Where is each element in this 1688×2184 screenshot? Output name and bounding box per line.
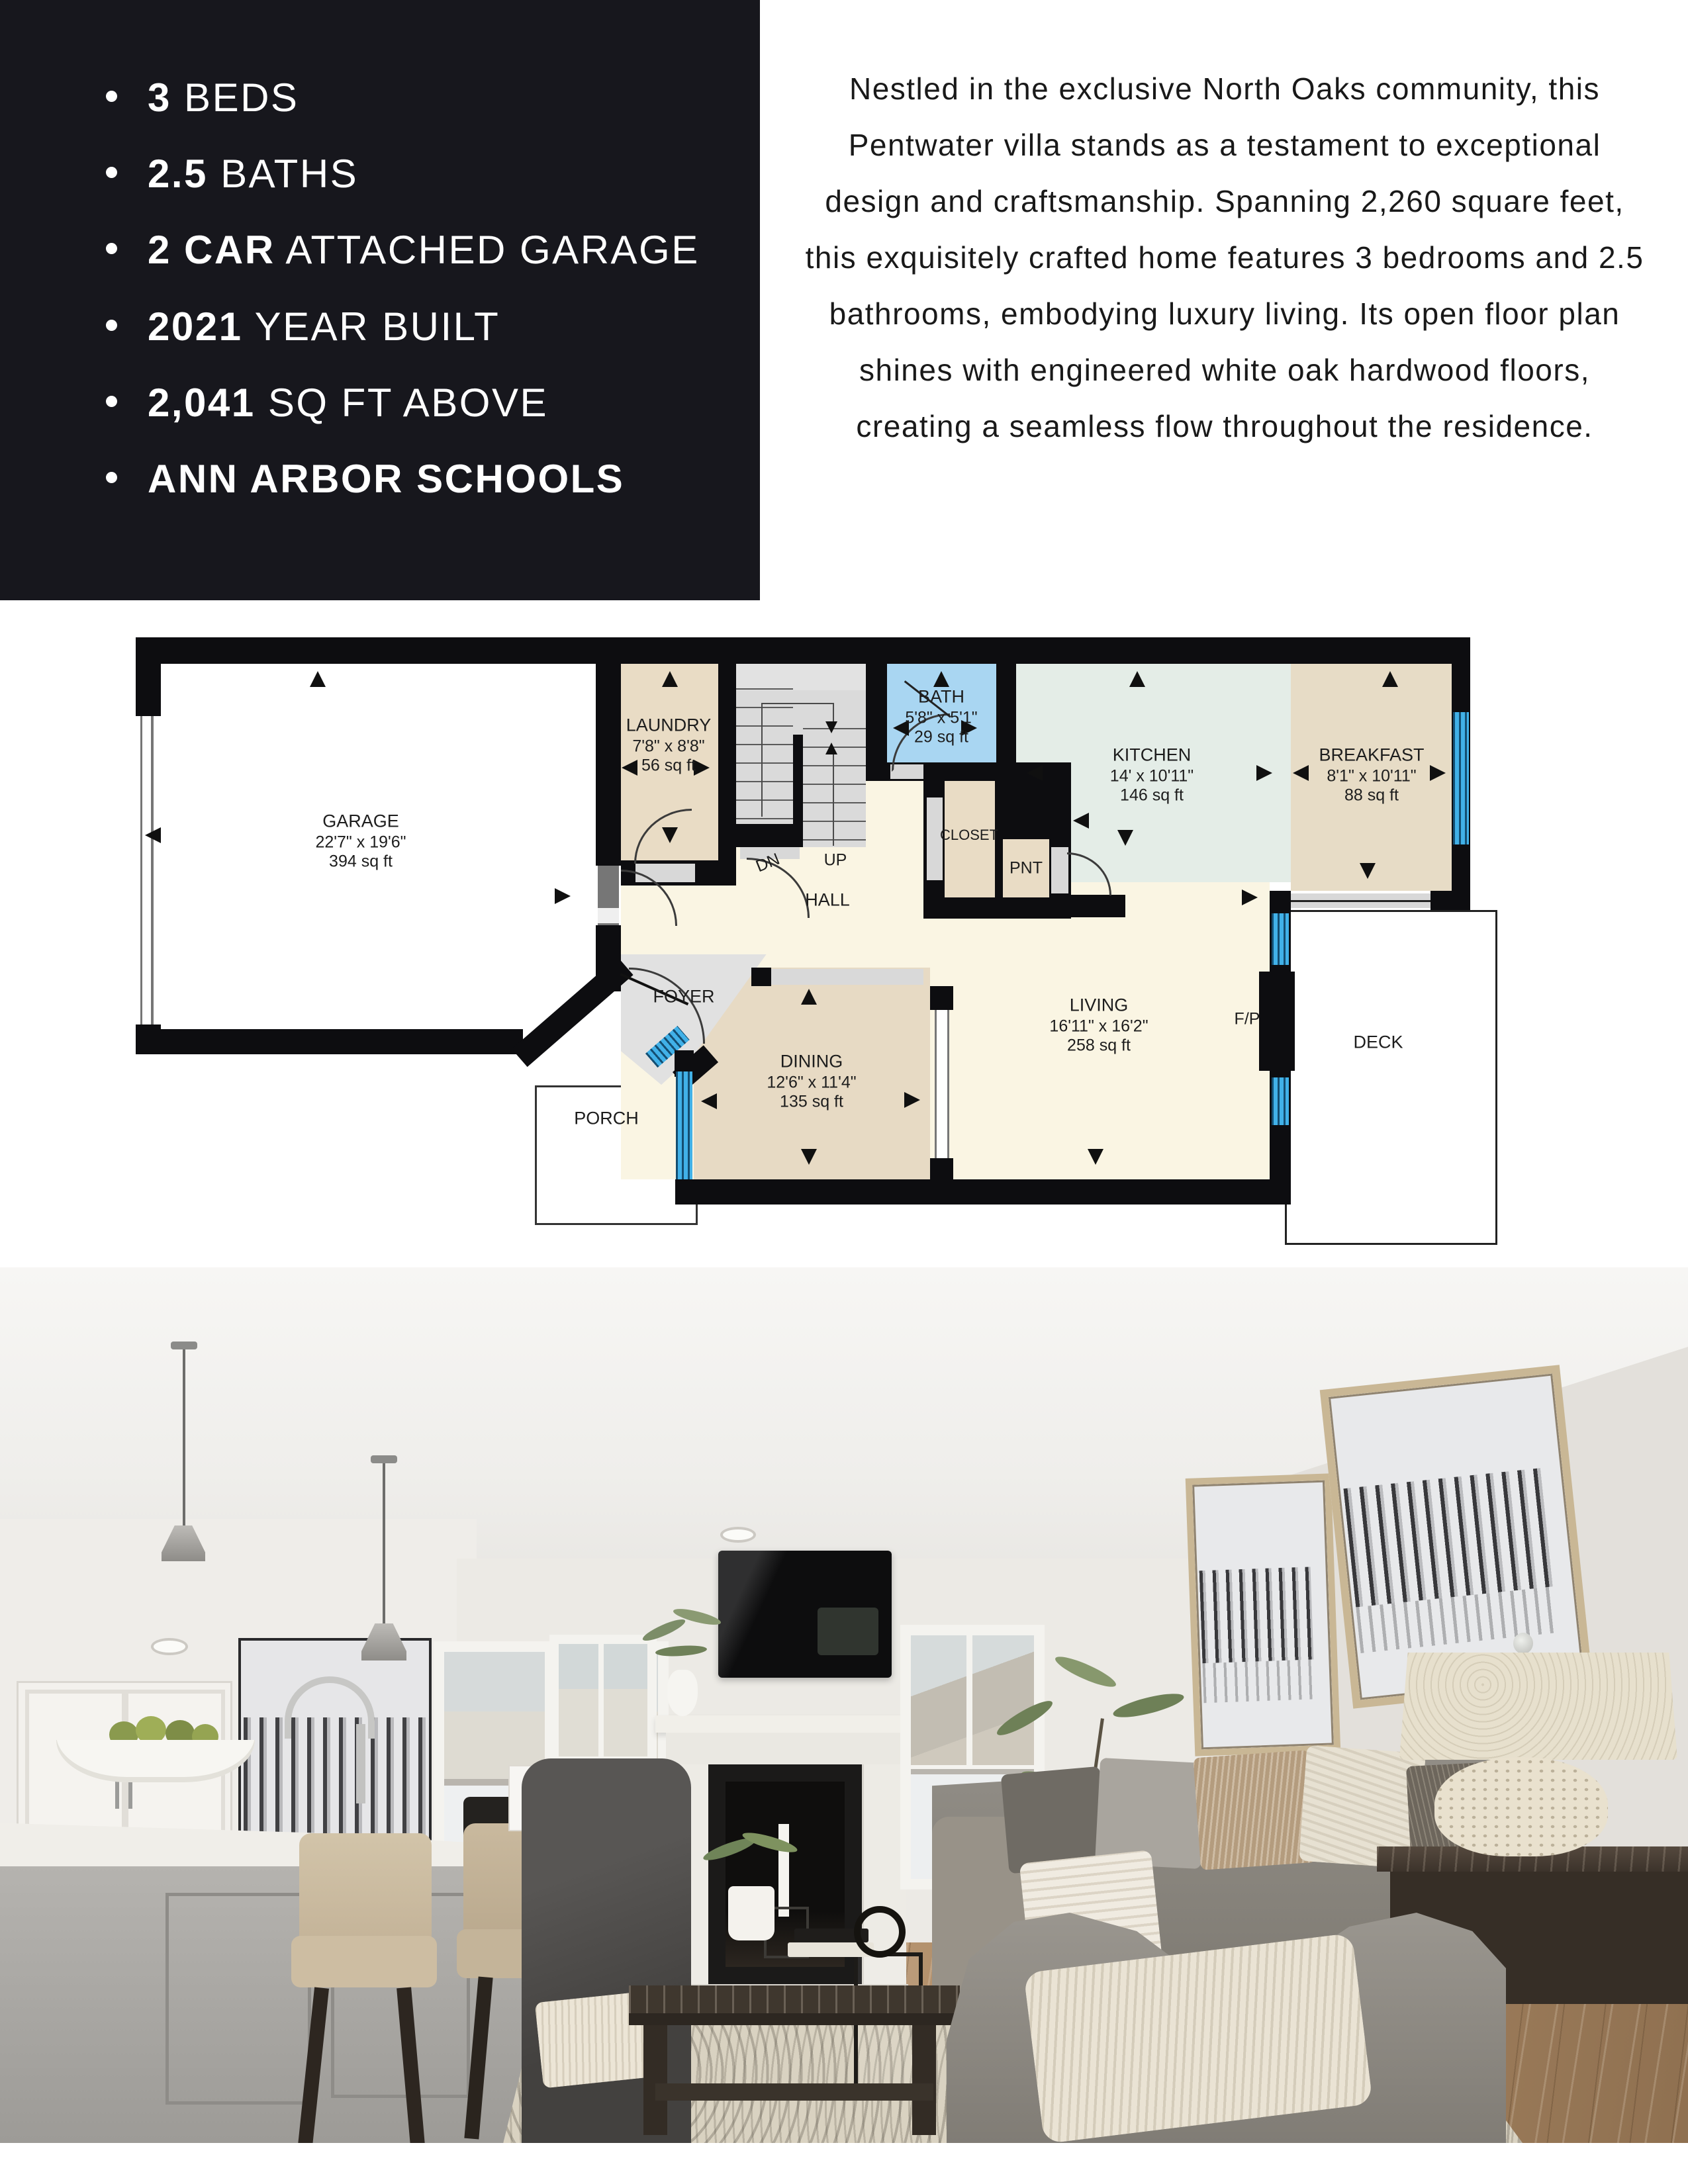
window-mullion [598, 1644, 604, 1756]
flyer-page: 3 BEDS 2.5 BATHS 2 CAR ATTACHED GARAGE 2… [0, 0, 1688, 2184]
dimension-arrow-icon [1088, 1149, 1103, 1165]
label-foyer: FOYER [653, 985, 714, 1009]
room-label-living: LIVING 16'11" x 16'2" 258 sq ft [1049, 994, 1148, 1056]
pendant-canopy [171, 1342, 197, 1349]
dimension-arrow-icon [1027, 765, 1043, 781]
feature-year: 2021 YEAR BUILT [106, 302, 500, 351]
breakfast-window [1453, 712, 1469, 844]
bullet-icon [106, 167, 117, 178]
deck-outline [1285, 910, 1497, 1245]
faucet-stem [356, 1724, 365, 1803]
stair-path-line [833, 703, 834, 723]
tv-reflection [818, 1608, 878, 1655]
art-streaks [1203, 1659, 1315, 1703]
label-closet: CLOSET [940, 827, 998, 844]
wall [1430, 891, 1470, 910]
tv [718, 1551, 892, 1678]
table-leg [643, 2025, 667, 2135]
dimension-arrow-icon [933, 671, 949, 687]
accent-chair [947, 1913, 1506, 2143]
room-label-bath: BATH 5'8" x 5'1" 29 sq ft [905, 686, 977, 747]
mantel-frieze [666, 1733, 904, 1764]
table-shelf [655, 2083, 933, 2101]
wall [996, 664, 1016, 762]
dimension-arrow-icon [145, 827, 161, 843]
pendant-rod [383, 1463, 385, 1625]
pendant-rod [183, 1349, 185, 1527]
label-fireplace: F/P [1235, 1010, 1260, 1029]
room-label-breakfast: BREAKFAST 8'1" x 10'11" 88 sq ft [1319, 744, 1424, 805]
label-hall: HALL [805, 889, 850, 912]
table-plant-pot [728, 1886, 774, 1940]
art-streaks [1199, 1567, 1314, 1663]
wall [930, 1158, 953, 1182]
feature-schools: ANN ARBOR SCHOOLS [106, 455, 624, 504]
dimension-arrow-icon [1360, 863, 1376, 879]
feature-beds: 3 BEDS [106, 73, 299, 122]
label-porch: PORCH [574, 1107, 639, 1130]
living-room-photo [0, 1267, 1688, 2143]
wall [136, 637, 161, 716]
stair-path-line [833, 747, 834, 846]
wall [136, 1029, 523, 1054]
dimension-arrow-icon [701, 1093, 717, 1109]
stair-treads-left [736, 688, 793, 824]
feature-baths: 2.5 BATHS [106, 150, 358, 199]
label-deck: DECK [1353, 1031, 1403, 1054]
stair-down-arrow-icon [825, 721, 837, 733]
lamp-ceramic-base [1434, 1757, 1608, 1856]
dining-window [676, 1071, 692, 1179]
bar-stool-back [299, 1833, 432, 1952]
wall [596, 664, 621, 866]
room-label-dining: DINING 12'6" x 11'4" 135 sq ft [767, 1050, 856, 1112]
property-description: Nestled in the exclusive North Oaks comm… [798, 61, 1652, 455]
room-label-kitchen: KITCHEN 14' x 10'11" 146 sq ft [1110, 744, 1194, 805]
room-label-laundry: LAUNDRY 7'8" x 8'8" 56 sq ft [626, 714, 712, 776]
label-pantry: PNT [1009, 859, 1043, 878]
mantel-vase [667, 1670, 698, 1716]
dimension-arrow-icon [662, 827, 678, 843]
bullet-icon [106, 91, 117, 102]
art-streaks [1343, 1468, 1553, 1607]
dimension-arrow-icon [904, 1092, 920, 1108]
coffee-table [629, 1985, 960, 2143]
pendant-canopy [371, 1455, 397, 1463]
wall [1071, 895, 1125, 917]
dining-living-opening [935, 1010, 949, 1158]
table-leg [912, 2025, 936, 2135]
stair-path-line [761, 703, 834, 704]
wall [596, 925, 621, 991]
decor-orb [854, 1906, 906, 1958]
wall [136, 637, 1470, 664]
feature-garage: 2 CAR ATTACHED GARAGE [106, 226, 700, 275]
garage-window [140, 716, 154, 1024]
leaf [1053, 1652, 1119, 1692]
wall [751, 968, 771, 986]
bullet-icon [106, 320, 117, 331]
feature-sqft: 2,041 SQ FT ABOVE [106, 379, 548, 428]
wall [675, 1179, 1291, 1205]
fruit-bowl [56, 1731, 255, 1794]
bowl [56, 1740, 255, 1782]
stair-up-arrow-icon [825, 743, 837, 754]
dining-opening [768, 969, 923, 985]
bullet-icon [106, 472, 117, 483]
bar-stool-seat [291, 1936, 437, 1987]
mantel-shelf [655, 1715, 915, 1733]
fireplace-wall [1259, 972, 1295, 1071]
table-edge [629, 2013, 960, 2025]
sofa-pillow [1095, 1758, 1206, 1869]
dimension-arrow-icon [1256, 765, 1272, 781]
bullet-icon [106, 396, 117, 407]
label-stairs-up: UP [824, 851, 847, 870]
abstract-art-left [1186, 1473, 1341, 1756]
island-panel [165, 1893, 311, 2105]
leaf [1111, 1689, 1186, 1722]
recessed-light-icon [151, 1638, 188, 1655]
wall [718, 664, 736, 886]
sofa-pillow [1193, 1750, 1316, 1870]
lamp-finial [1513, 1633, 1533, 1654]
lamp-shade [1399, 1653, 1677, 1760]
dimension-arrow-icon [1430, 765, 1446, 781]
dimension-arrow-icon [801, 989, 817, 1005]
table-top [629, 1985, 960, 2013]
wall [930, 986, 953, 1010]
pantry-door-opening [1051, 847, 1068, 893]
dimension-arrow-icon [310, 671, 326, 687]
living-window [1272, 913, 1289, 965]
dimension-arrow-icon [662, 671, 678, 687]
dimension-arrow-icon [1117, 830, 1133, 846]
garage-door-opening [598, 866, 619, 925]
dimension-arrow-icon [801, 1149, 817, 1165]
living-window [1272, 1077, 1289, 1125]
dimension-arrow-icon [1073, 813, 1089, 829]
recessed-light-icon [720, 1527, 756, 1543]
bullet-icon [106, 243, 117, 254]
dimension-arrow-icon [1129, 671, 1145, 687]
sliding-door-line [1291, 900, 1430, 902]
features-panel: 3 BEDS 2.5 BATHS 2 CAR ATTACHED GARAGE 2… [0, 0, 760, 600]
stair-path-line [761, 703, 763, 817]
dimension-arrow-icon [1242, 889, 1258, 905]
wall [736, 824, 803, 847]
dimension-arrow-icon [555, 888, 571, 904]
dimension-arrow-icon [1382, 671, 1398, 687]
candle [778, 1824, 789, 1917]
room-label-garage: GARAGE 22'7" x 19'6" 394 sq ft [315, 810, 406, 872]
dimension-arrow-icon [1293, 765, 1309, 781]
